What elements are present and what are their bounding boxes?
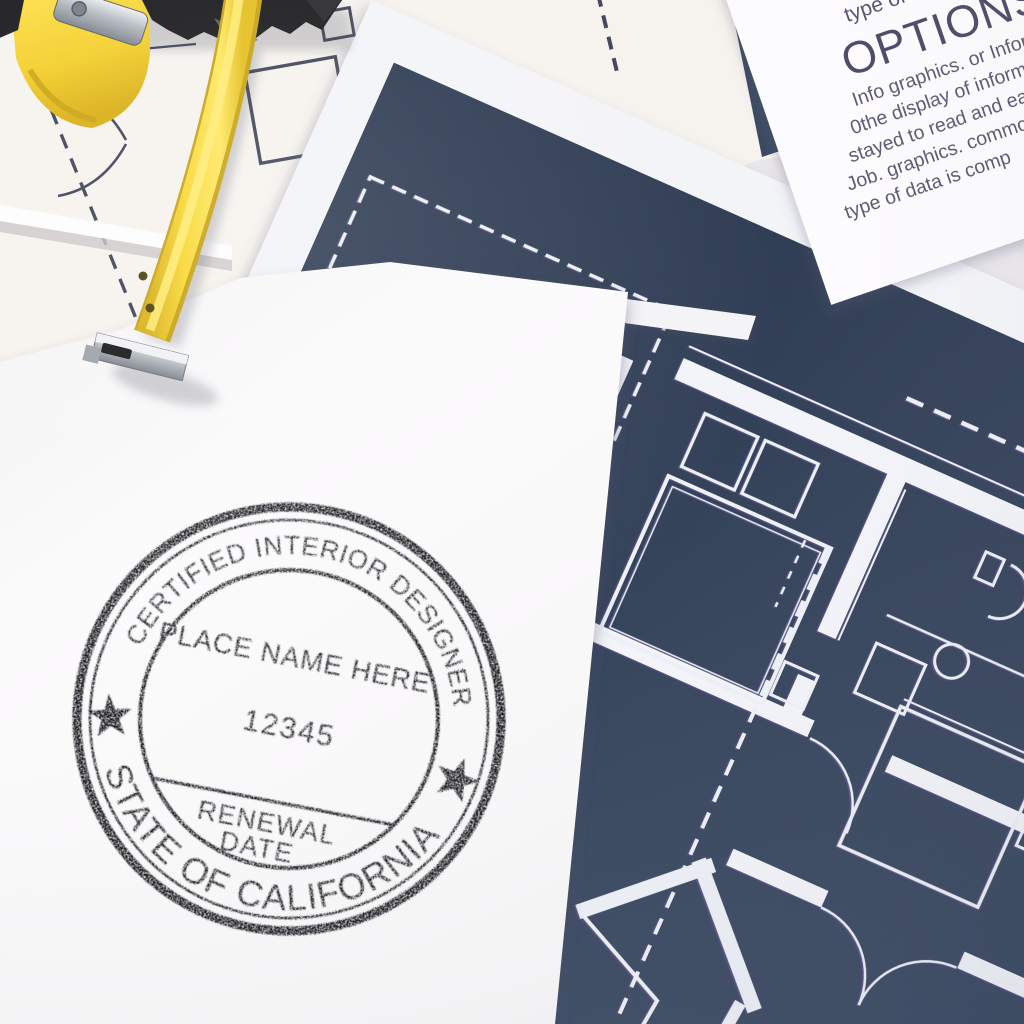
photo-vignette xyxy=(0,0,1024,1024)
photo-scene: CERTIFIED INTERIOR DESIGNER STATE OF CAL… xyxy=(0,0,1024,1024)
scene-canvas: CERTIFIED INTERIOR DESIGNER STATE OF CAL… xyxy=(0,0,1024,1024)
